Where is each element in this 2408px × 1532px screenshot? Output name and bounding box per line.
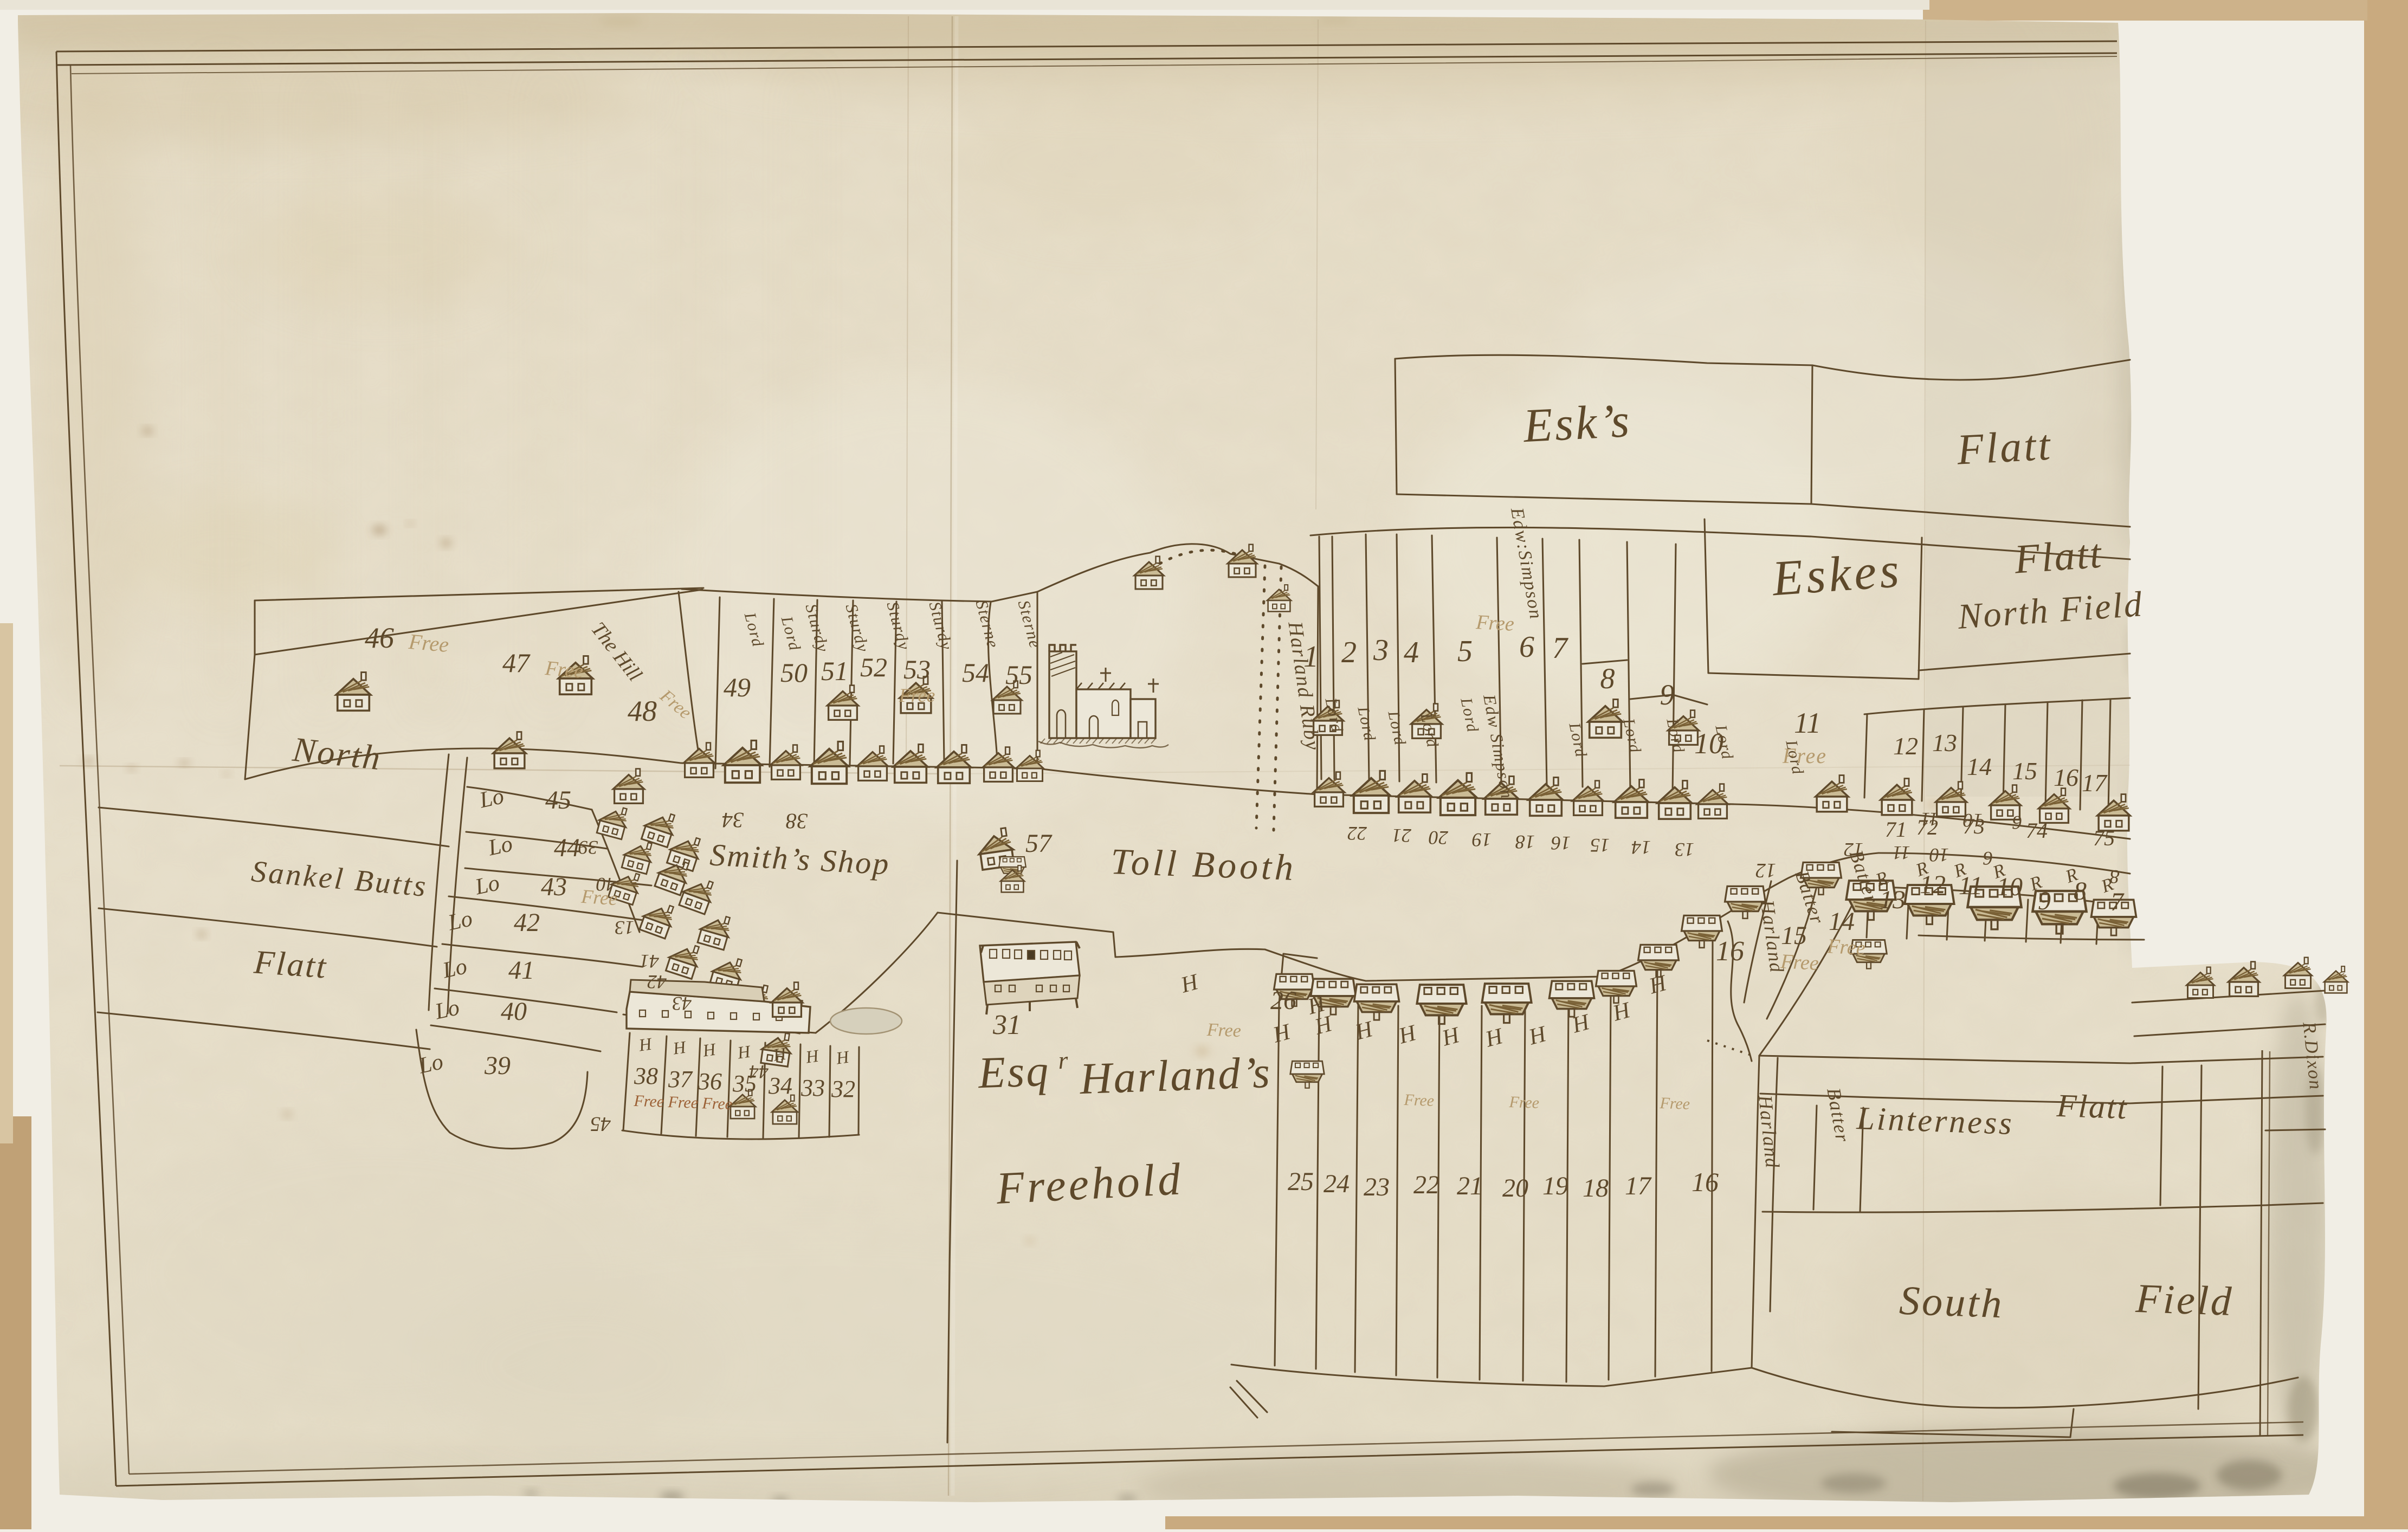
svg-text:Harland’s: Harland’s [1079, 1048, 1273, 1103]
svg-text:42: 42 [647, 971, 667, 993]
svg-text:74: 74 [2026, 818, 2048, 843]
svg-text:41: 41 [508, 956, 534, 985]
svg-text:Flatt: Flatt [1955, 422, 2054, 474]
svg-text:23: 23 [1364, 1173, 1390, 1201]
svg-text:South: South [1899, 1278, 2005, 1327]
svg-text:42: 42 [514, 908, 540, 937]
svg-text:54: 54 [962, 657, 989, 688]
svg-text:Toll Booth: Toll Booth [1110, 841, 1297, 888]
svg-text:41: 41 [640, 951, 659, 972]
svg-text:Lo: Lo [486, 831, 515, 861]
svg-text:50: 50 [780, 657, 808, 688]
svg-text:15: 15 [1590, 835, 1610, 856]
svg-text:32: 32 [831, 1076, 855, 1102]
svg-text:Free: Free [1659, 1094, 1690, 1113]
svg-text:11: 11 [1920, 809, 1938, 830]
svg-text:51: 51 [821, 656, 848, 686]
svg-text:22: 22 [1347, 823, 1367, 844]
svg-text:38: 38 [786, 809, 808, 833]
svg-text:39: 39 [484, 1051, 511, 1080]
svg-text:49: 49 [724, 672, 751, 702]
svg-text:Flatt: Flatt [2056, 1088, 2129, 1126]
svg-text:16: 16 [2054, 764, 2078, 791]
svg-text:12: 12 [1893, 732, 1918, 760]
svg-text:14: 14 [1967, 753, 1992, 780]
svg-text:37: 37 [668, 1066, 693, 1093]
svg-text:47: 47 [502, 648, 531, 678]
svg-text:71: 71 [1885, 817, 1907, 842]
svg-text:Flatt: Flatt [252, 943, 328, 985]
svg-text:6: 6 [1983, 848, 1993, 869]
svg-text:17: 17 [1625, 1172, 1652, 1200]
svg-text:36: 36 [698, 1068, 722, 1095]
svg-text:Freehold: Freehold [995, 1154, 1184, 1214]
svg-text:8: 8 [2110, 866, 2120, 888]
svg-text:Free: Free [1206, 1020, 1241, 1041]
svg-text:5: 5 [1457, 635, 1473, 668]
svg-text:Free: Free [1475, 611, 1515, 636]
svg-text:Lo: Lo [477, 784, 506, 813]
svg-text:16: 16 [1551, 832, 1571, 854]
svg-text:34: 34 [722, 808, 744, 832]
svg-text:40: 40 [501, 997, 527, 1026]
svg-text:Linterness: Linterness [1856, 1100, 2015, 1141]
svg-text:75: 75 [2093, 826, 2115, 850]
svg-text:Flatt: Flatt [2012, 531, 2104, 582]
svg-text:39: 39 [578, 837, 598, 858]
svg-text:7: 7 [1552, 631, 1568, 665]
svg-text:2: 2 [1341, 636, 1357, 669]
svg-text:9: 9 [1660, 678, 1675, 711]
svg-text:Lo: Lo [432, 995, 462, 1024]
svg-text:Lo: Lo [416, 1049, 446, 1078]
svg-text:40: 40 [596, 874, 616, 895]
svg-text:25: 25 [1288, 1167, 1314, 1196]
svg-text:Lo: Lo [473, 870, 502, 900]
svg-text:22: 22 [1413, 1171, 1439, 1199]
svg-text:Free: Free [1508, 1093, 1540, 1112]
svg-text:11: 11 [1892, 842, 1910, 864]
svg-text:11: 11 [1794, 707, 1821, 739]
svg-text:26: 26 [1270, 986, 1296, 1015]
svg-text:15: 15 [2012, 757, 2037, 785]
svg-text:12: 12 [1755, 859, 1776, 882]
svg-text:Eskes: Eskes [1770, 542, 1904, 606]
svg-text:Esq: Esq [977, 1046, 1050, 1098]
svg-text:18: 18 [1515, 831, 1535, 853]
svg-text:Free: Free [1826, 935, 1866, 960]
svg-text:13: 13 [1932, 729, 1957, 757]
svg-text:16: 16 [1692, 1167, 1719, 1197]
svg-text:Field: Field [2134, 1276, 2234, 1324]
svg-text:46: 46 [365, 622, 394, 654]
svg-text:20: 20 [1502, 1174, 1528, 1203]
svg-text:20: 20 [1429, 827, 1448, 849]
svg-text:Lo: Lo [440, 954, 469, 983]
svg-text:21: 21 [1392, 825, 1411, 846]
svg-text:4: 4 [1404, 636, 1419, 669]
svg-text:14: 14 [1829, 907, 1855, 936]
svg-text:Free: Free [407, 629, 450, 657]
svg-text:44: 44 [749, 1061, 769, 1083]
svg-text:48: 48 [628, 695, 657, 727]
svg-text:53: 53 [903, 654, 931, 684]
svg-text:19: 19 [1472, 829, 1492, 851]
svg-text:57: 57 [1025, 829, 1053, 858]
svg-text:19: 19 [1542, 1172, 1568, 1200]
svg-text:Free: Free [544, 657, 584, 683]
svg-text:44: 44 [554, 833, 580, 862]
svg-text:Esk’s: Esk’s [1521, 395, 1632, 453]
svg-text:Free: Free [1403, 1091, 1435, 1110]
svg-text:31: 31 [992, 1010, 1021, 1040]
svg-text:10: 10 [1963, 810, 1983, 831]
svg-text:3: 3 [1373, 634, 1389, 667]
svg-text:13: 13 [1675, 839, 1694, 861]
svg-text:34: 34 [768, 1072, 792, 1099]
svg-text:43: 43 [541, 872, 567, 901]
svg-text:33: 33 [800, 1075, 825, 1101]
svg-text:52: 52 [860, 652, 887, 682]
svg-text:6: 6 [2012, 812, 2022, 833]
svg-text:38: 38 [634, 1063, 658, 1089]
svg-text:Free Free Free: Free Free Free [633, 1092, 733, 1113]
svg-text:16: 16 [1716, 936, 1744, 967]
svg-text:45: 45 [545, 786, 571, 815]
svg-text:13: 13 [615, 917, 634, 939]
svg-text:10: 10 [1929, 844, 1949, 866]
svg-text:21: 21 [1457, 1172, 1483, 1200]
svg-text:45: 45 [590, 1113, 611, 1135]
svg-text:8: 8 [1600, 662, 1615, 695]
svg-text:13: 13 [1880, 885, 1906, 914]
svg-text:43: 43 [672, 993, 692, 1014]
svg-text:Free: Free [899, 684, 935, 706]
svg-text:24: 24 [1324, 1169, 1350, 1198]
svg-text:18: 18 [1583, 1174, 1609, 1203]
svg-text:r: r [1058, 1046, 1069, 1075]
svg-text:17: 17 [2082, 769, 2108, 797]
svg-text:6: 6 [1519, 630, 1534, 664]
svg-text:55: 55 [1005, 660, 1032, 690]
svg-text:Lo: Lo [446, 906, 475, 935]
svg-text:14: 14 [1631, 837, 1651, 858]
